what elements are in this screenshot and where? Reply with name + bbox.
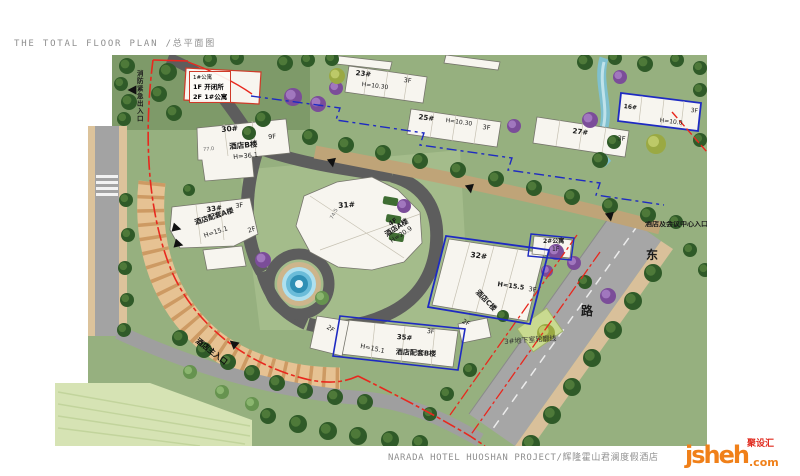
building-30-id: 30# [221, 125, 238, 135]
conference-entrance-label: 酒店及会议中心入口 [645, 221, 707, 229]
building-35-floors: 3F [426, 328, 434, 336]
building-1-label: 1#公寓 1F 开闭所 2F 1#公寓 [189, 71, 231, 103]
building-2-floors: 1F [552, 247, 559, 254]
building-1-id: 1#公寓 [193, 73, 227, 81]
building-23-floors: 3F [403, 77, 412, 85]
road-name-lu: 路 [581, 305, 593, 318]
building-30-floors: 9F [268, 133, 276, 141]
road-name-east: 东 [646, 249, 658, 262]
building-1-line2: 2F 1#公寓 [193, 91, 227, 101]
building-1-line1: 1F 开闭所 [193, 81, 227, 91]
fire-access-label: 消防紧急出入口 [135, 70, 142, 123]
fountain [277, 262, 321, 306]
building-2-id: 2#公寓 [543, 239, 564, 246]
building-16-id: 16# [623, 104, 637, 112]
dimension-label: 77.0 [203, 147, 215, 154]
building-27-floors: 3F [617, 135, 626, 143]
building-33-floors: 3F [235, 202, 244, 210]
building-35-id: 35# [396, 334, 412, 343]
building-25-floors: 3F [482, 124, 491, 132]
watermark: 聚设汇 jsheh .com [683, 435, 795, 473]
watermark-tld: .com [749, 456, 779, 469]
watermark-badge: 聚设汇 [747, 436, 774, 449]
west-road [88, 126, 127, 336]
plan-sheet: THE TOTAL FLOOR PLAN /总平面图 [0, 0, 800, 476]
building-16-floors: 3F [690, 108, 698, 116]
watermark-logo: jsheh [685, 441, 748, 469]
building-32-floors: 3F [528, 286, 537, 294]
project-title: NARADA HOTEL HUOSHAN PROJECT/辉隆霍山君澜度假酒店 [388, 450, 659, 463]
building-31-id: 31# [338, 201, 355, 211]
